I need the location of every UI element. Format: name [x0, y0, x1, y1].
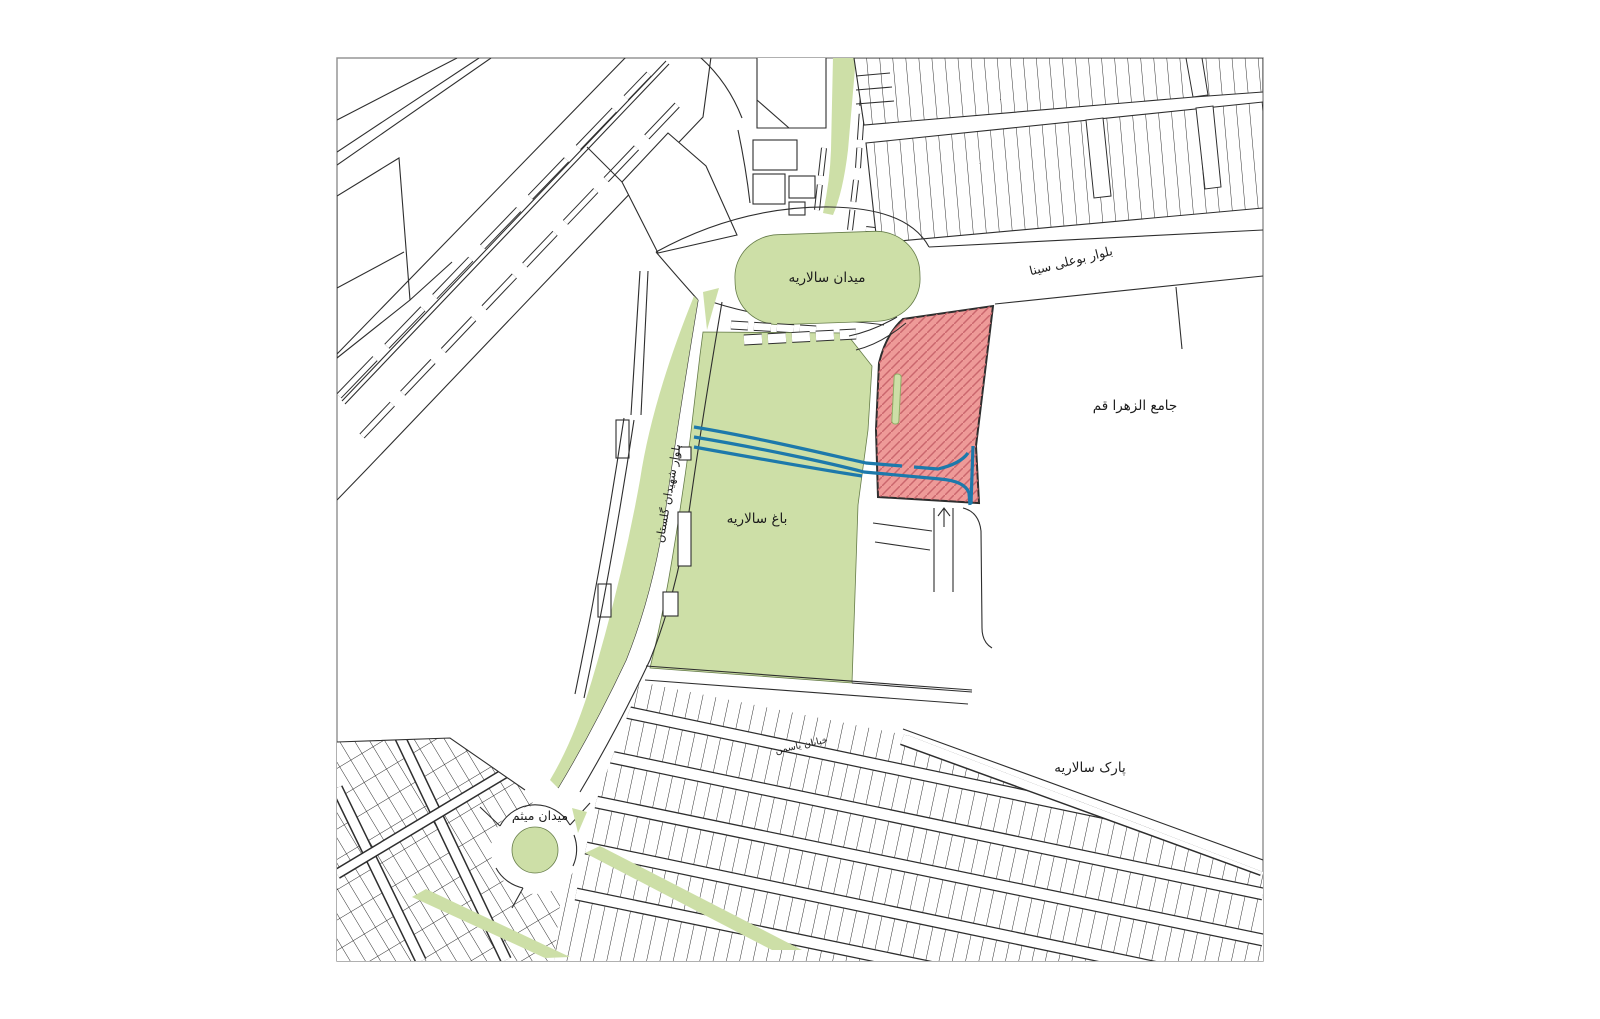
building [753, 140, 797, 170]
label-salariyeh-square: میدان سالاریه [789, 270, 866, 286]
building [753, 174, 785, 204]
roundabout-green [512, 827, 558, 873]
label-salariyeh-garden: باغ سالاریه [727, 511, 788, 527]
road-bay [663, 592, 678, 616]
building [789, 176, 815, 198]
building [598, 584, 611, 617]
site-plan-map: میدان سالاریه بلوار بوعلی سینا جامع الزه… [0, 0, 1600, 1019]
building-block [757, 57, 826, 128]
label-salariyeh-park: پارک سالاریه [1054, 760, 1126, 776]
label-meysam-square: میدان میثم [512, 808, 568, 824]
label-jamiat-al-zahra: جامع الزهرا قم [1093, 398, 1178, 414]
road-bay [678, 512, 691, 566]
site-plan-canvas: میدان سالاریه بلوار بوعلی سینا جامع الزه… [0, 0, 1600, 1019]
